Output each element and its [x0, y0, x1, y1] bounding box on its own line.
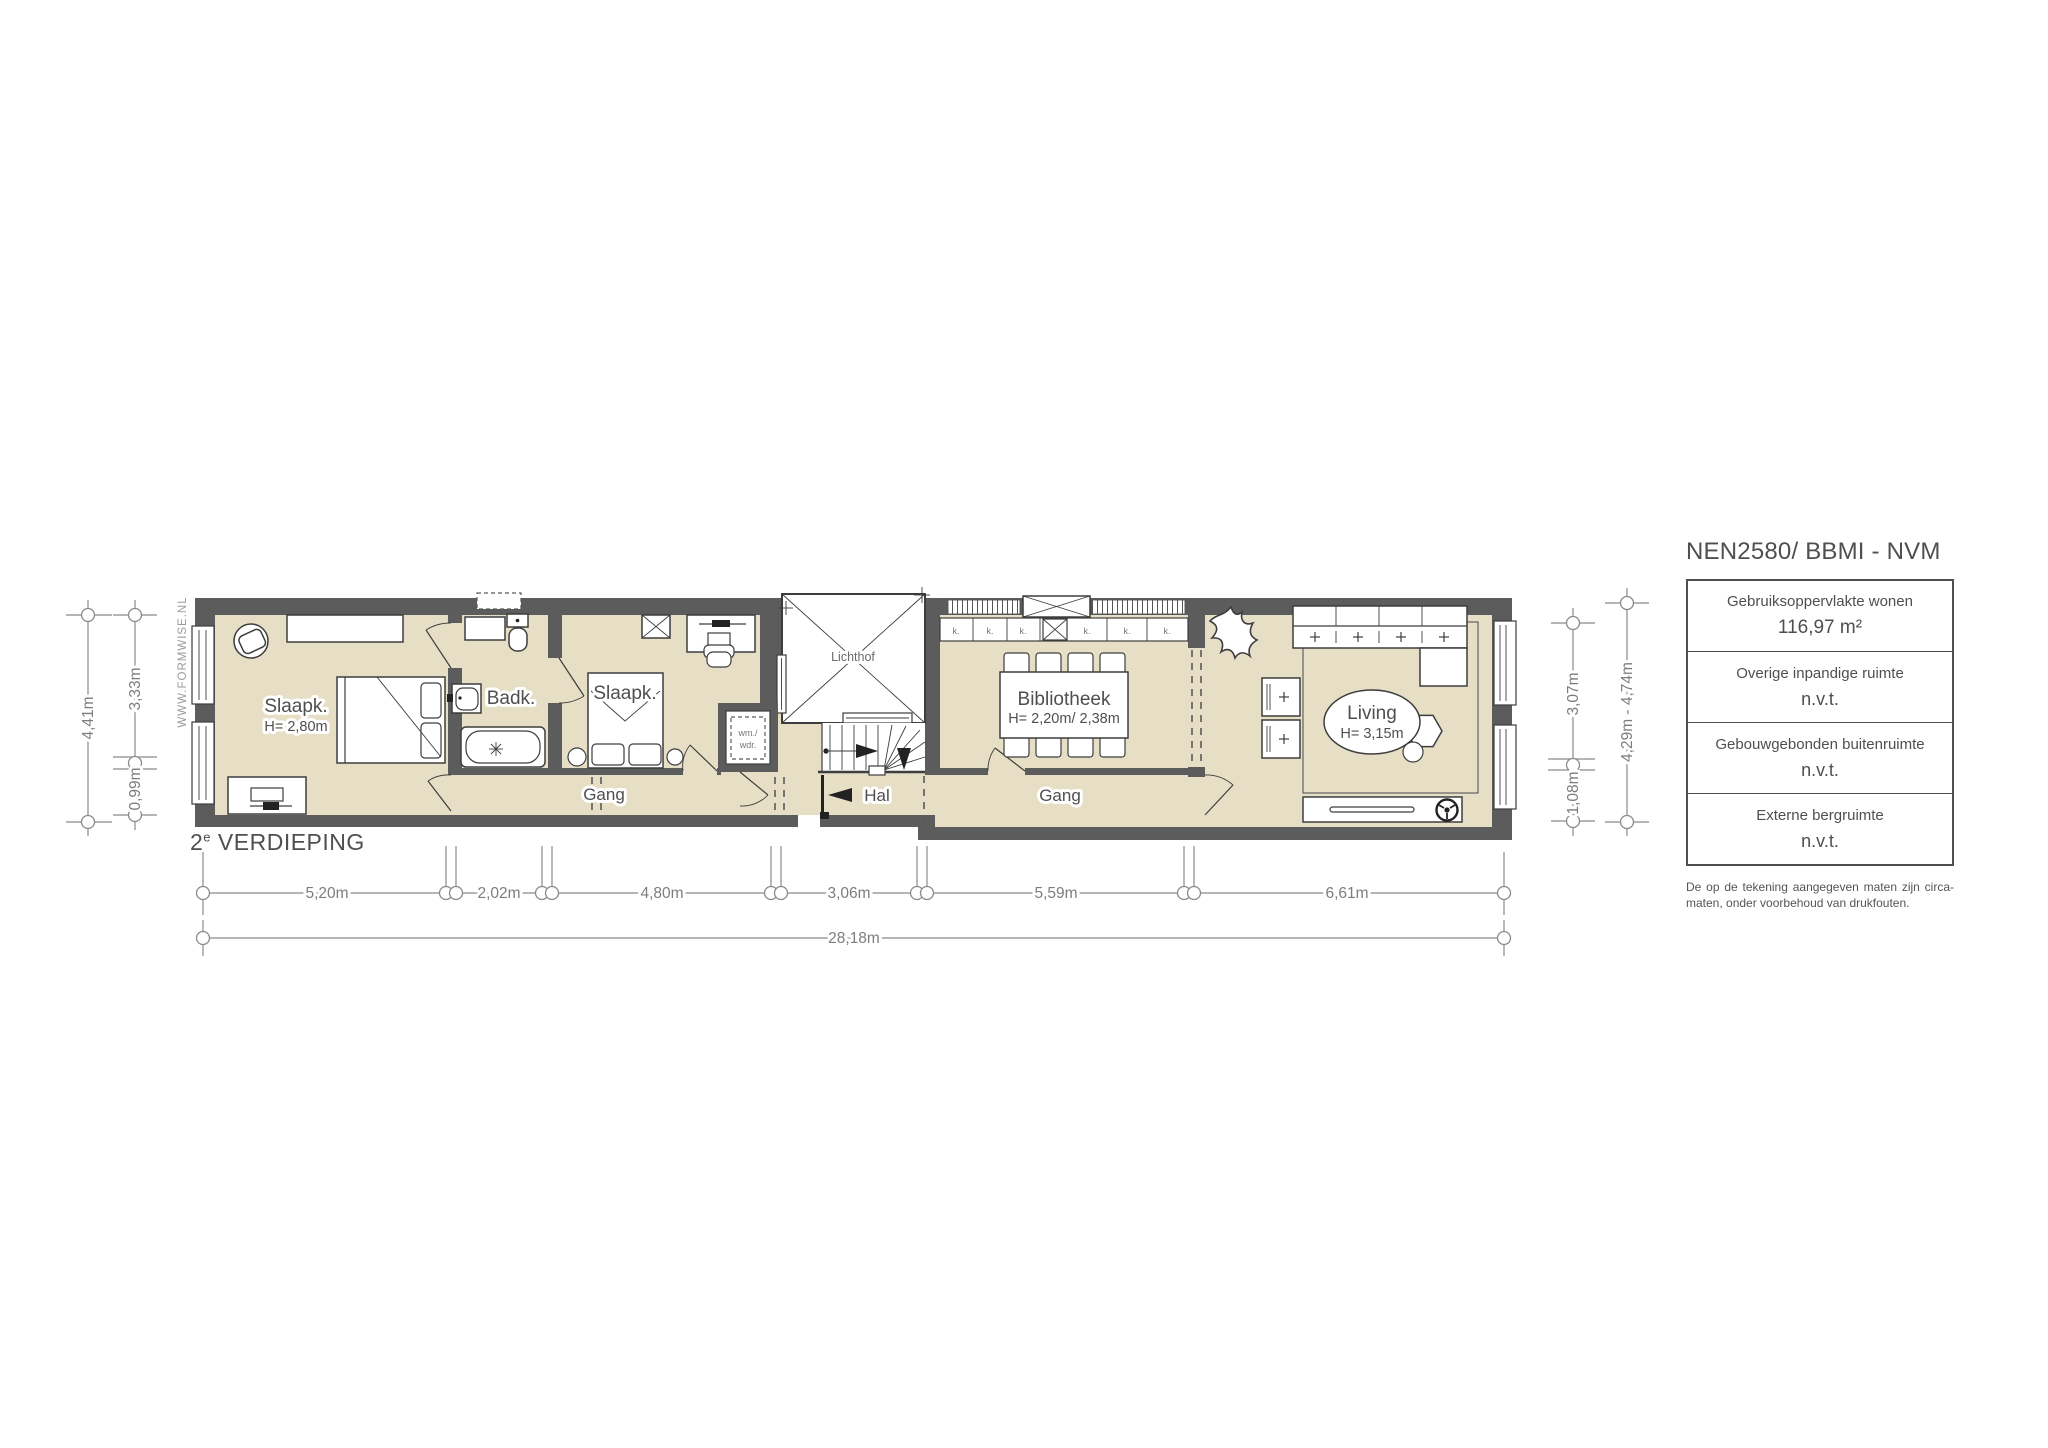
- room-label-living: Living: [1347, 703, 1397, 724]
- dimension-label: 1,08m: [1565, 771, 1582, 814]
- row-value: 116,97 m²: [1778, 617, 1862, 639]
- watermark-text: WWW.FORMWISE.NL: [177, 596, 189, 727]
- dimension-label: 6,61m: [1325, 885, 1368, 902]
- ribbon-window: [948, 600, 1020, 614]
- dimension-label: 4,41m: [80, 696, 97, 739]
- grid-point: [765, 846, 788, 900]
- room-height-bibliotheek: H= 2,20m/ 2,38m: [1008, 711, 1120, 727]
- floorplan-page: wm./ wdr. k. k. k. k. k. k.: [0, 0, 2048, 1448]
- row-value: n.v.t.: [1801, 689, 1839, 710]
- row-label: Gebouwgebonden buitenruimte: [1715, 736, 1924, 753]
- window: [1494, 621, 1516, 705]
- dimension-label: 4,80m: [640, 885, 683, 902]
- dimension-label: 3,33m: [127, 667, 144, 710]
- floor-title-text: VERDIEPING: [211, 829, 365, 855]
- row-label: Externe bergruimte: [1756, 807, 1884, 824]
- desk-chair-icon: [704, 645, 734, 667]
- side-table-icon: [568, 748, 586, 766]
- laundry-closet: wm./ wdr.: [718, 703, 778, 772]
- window: [192, 626, 214, 704]
- ribbon-window: [1092, 600, 1185, 614]
- armchair-icon: [1262, 678, 1300, 716]
- grid-point: [440, 846, 463, 900]
- grid-point: [536, 846, 559, 900]
- room-label-gang-right: Gang: [1039, 786, 1081, 805]
- closet-cell-label: k.: [986, 626, 993, 636]
- tv-console-icon: [1303, 797, 1462, 822]
- laundry-label: wdr.: [739, 740, 757, 750]
- dimension-label: 2,02m: [477, 885, 520, 902]
- table-row: Externe bergruimte n.v.t.: [1688, 794, 1952, 864]
- vent-box-icon: [1023, 596, 1090, 617]
- room-label-hal: Hal: [864, 786, 890, 805]
- closet-row: k. k. k. k. k. k.: [940, 618, 1188, 641]
- entry-door-gap: [798, 815, 820, 827]
- closet-cell-label: k.: [1019, 626, 1026, 636]
- laundry-label: wm./: [738, 728, 758, 738]
- window: [1494, 725, 1516, 809]
- row-value: n.v.t.: [1801, 831, 1839, 852]
- wardrobe-icon: [642, 615, 670, 638]
- grid-point: [911, 846, 934, 900]
- speaker-icon: [1437, 800, 1458, 821]
- room-height-slaapk1: H= 2,80m: [264, 719, 327, 735]
- dimension-lines-left: 4,41m 3,33m 0,99m: [66, 600, 157, 836]
- closet-cell-label: k.: [952, 626, 959, 636]
- wardrobe-icon: [287, 615, 403, 642]
- desk-chair-icon: [234, 624, 268, 658]
- dimension-label: 4,29m - 4,74m: [1619, 662, 1636, 762]
- room-label-bibliotheek: Bibliotheek: [1018, 689, 1111, 710]
- nen2580-panel: NEN2580/ BBMI - NVM Gebruiksoppervlakte …: [1686, 538, 1954, 912]
- room-label-slaapk2: Slaapk.: [593, 683, 656, 704]
- table-row: Gebruiksoppervlakte wonen 116,97 m²: [1688, 581, 1952, 652]
- floor-title-sup: e: [203, 829, 211, 844]
- desk-icon: [228, 777, 306, 814]
- dimension-lines-bottom: 5,20m 2,02m 4,80m 3,06m 5,59m 6,61m 28,1…: [197, 846, 1511, 956]
- floor-title-number: 2: [190, 829, 203, 855]
- closet-cell-label: k.: [1083, 626, 1090, 636]
- armchair-icon: [1262, 720, 1300, 758]
- dimension-label: 3,07m: [1565, 672, 1582, 715]
- roof-light-dashed: [477, 593, 521, 609]
- closet-cell-label: k.: [1123, 626, 1130, 636]
- window: [192, 722, 214, 804]
- vanity-icon: [465, 617, 505, 640]
- row-label: Gebruiksoppervlakte wonen: [1727, 593, 1913, 610]
- room-label-lichthof: Lichthof: [831, 650, 875, 664]
- disclaimer-text: De op de tekening aangegeven maten zijn …: [1686, 880, 1954, 912]
- nen2580-table: Gebruiksoppervlakte wonen 116,97 m² Over…: [1686, 579, 1954, 866]
- window: [843, 713, 912, 723]
- dimension-label: 3,06m: [827, 885, 870, 902]
- dimension-label: 5,20m: [305, 885, 348, 902]
- window: [777, 655, 786, 713]
- row-label: Overige inpandige ruimte: [1736, 665, 1904, 682]
- dimension-lines-right: 3,07m 1,08m 4,29m - 4,74m: [1548, 588, 1649, 836]
- stairs-icon: [818, 723, 925, 775]
- table-row: Overige inpandige ruimte n.v.t.: [1688, 652, 1952, 723]
- dimension-label: 0,99m: [127, 767, 144, 810]
- row-value: n.v.t.: [1801, 760, 1839, 781]
- room-label-slaapk1: Slaapk.: [264, 696, 327, 717]
- room-label-gang-left: Gang: [583, 785, 625, 804]
- bathtub-icon: [461, 727, 545, 767]
- floor-title: 2e VERDIEPING: [190, 829, 365, 856]
- room-label-badk: Badk.: [487, 688, 536, 709]
- grid-point: [1178, 846, 1201, 900]
- toilet-icon: [507, 614, 528, 651]
- side-table-icon: [667, 749, 683, 765]
- dimension-label-total: 28,18m: [828, 930, 880, 947]
- nen2580-title: NEN2580/ BBMI - NVM: [1686, 538, 1954, 566]
- washbasin-icon: [447, 684, 481, 713]
- closet-cell-label: k.: [1163, 626, 1170, 636]
- dimension-label: 5,59m: [1034, 885, 1077, 902]
- vent-box-icon: [1043, 619, 1067, 640]
- bed-icon: [337, 677, 445, 763]
- table-row: Gebouwgebonden buitenruimte n.v.t.: [1688, 723, 1952, 794]
- room-height-living: H= 3,15m: [1340, 726, 1403, 742]
